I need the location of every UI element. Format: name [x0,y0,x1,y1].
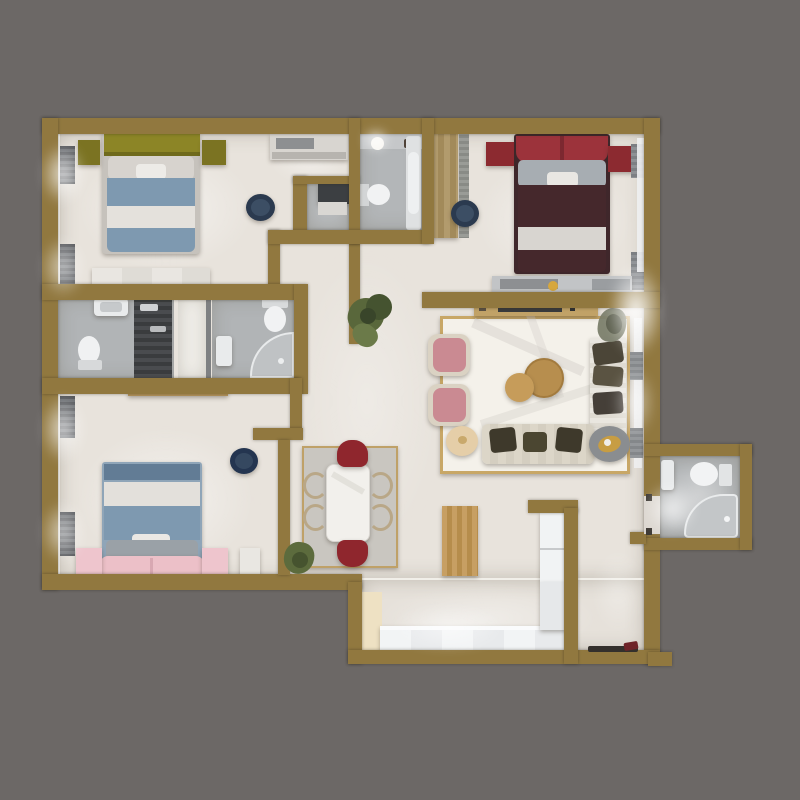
oval-table-cup [604,439,611,446]
dining-chair-3 [368,472,393,499]
hall-top-wall [268,230,430,244]
bed3-curtain-2 [60,512,75,556]
bed1-curtain-1 [60,146,75,184]
dining-chair-4 [368,504,393,531]
bed1-canopy [104,134,200,154]
toilet-top-bowl [367,184,390,205]
sink-right [661,460,674,490]
daybed-pillow-2 [592,365,624,388]
dining-chair-2 [303,504,328,531]
door-hinge-top [646,494,652,501]
entry-corner-step [648,652,672,666]
curtain-living-drape-2 [630,428,643,458]
toilet-mid-bowl [264,306,286,332]
armchair-2-seat [433,388,466,422]
bedroom2-left-wall [422,118,434,244]
dining-chair-red-bottom [337,540,368,567]
bathroom-door-light [178,296,206,380]
sofa-pillow-1 [489,427,517,454]
coffee-table-small [505,373,534,402]
armchair-1-seat [433,338,466,372]
bed1-nightstand-left [78,140,100,165]
bedroom3-door-header [253,428,303,440]
desk-chair-2-seat [456,205,474,222]
sink-mid [216,336,232,366]
bed3-curtain-1 [60,396,75,438]
bed3-foot [104,464,200,480]
dining-chair-red-top [337,440,368,467]
daybed-pillow-3 [592,391,623,415]
kitchen-cabinet-tall [540,582,566,630]
closet-left-wall [293,176,307,234]
fridge-line [540,548,566,550]
sink-left-basin [100,302,122,312]
bathroom-top-left-wall [349,118,360,244]
bed3-sheet [104,482,200,508]
bed2-nightstand-left [486,142,514,166]
bed2-duvet [518,185,606,229]
bathroom-right-bottom-wall [644,538,752,550]
shower-mid-drain [278,358,284,364]
side-table-deco [458,436,467,444]
desk-1-top [276,138,314,149]
wood-mat [442,506,478,576]
daybed-pillow-1 [592,340,625,366]
floor-plan [0,0,800,800]
left-wall [42,118,58,590]
hall-left-wall [290,378,302,430]
balcony-door [362,592,382,650]
bathroom-row-bottom-wall [42,378,298,394]
toilet-right-bowl [690,462,718,486]
bath-partition [206,298,211,380]
bed1-curtain-2 [60,244,75,284]
desk-chair-1-seat [251,199,270,216]
desk-2-right [592,279,630,290]
bed1-sheet [107,206,195,230]
closet-cabinet-front [318,202,347,215]
curtain-living-drape [630,352,643,380]
towel-1 [140,304,158,311]
closet-cabinet [318,184,349,204]
curtain-2-sheer [637,138,644,272]
toilet-right-tank [719,464,732,486]
sofa-pillow-2 [523,432,547,452]
dining-plant-core [292,552,308,568]
bedroom3-bottom-wall [42,574,362,590]
kitchen-nook-wall-v [564,508,578,664]
toilet-left-tank [78,360,102,370]
bed1-nightstand-right [202,140,226,165]
hall-plant-core [360,308,376,324]
dining-chair-1 [303,472,328,499]
door-hinge-bottom [646,528,652,535]
balcony-bottom-wall [348,650,660,664]
kitchen-counter-edge [380,626,564,630]
sofa-pillow-3 [555,427,583,454]
bed1-pillow-white [136,164,166,179]
bathroom-right-top-wall [644,444,752,456]
towel-2 [150,326,166,332]
right-wall [644,118,660,664]
bed2-duvet-foot [518,250,606,272]
desk-1-shelf [272,152,346,159]
bed2-canopy-split [560,136,564,160]
bedroom2-bottom-wall [422,292,660,308]
fridge [540,512,566,582]
desk-2-lamp [548,281,558,291]
bed2-sheet [518,227,606,252]
bathroom-row-top-wall [42,284,294,300]
bathroom-right-end-wall [740,444,752,550]
bed1-duvet-foot [107,228,195,252]
shower-right-handle [724,516,730,522]
bathtub-top-inner [408,152,419,214]
desk-chair-3-seat [235,453,253,469]
bed1-duvet [107,178,195,208]
mirror-light [371,137,384,150]
